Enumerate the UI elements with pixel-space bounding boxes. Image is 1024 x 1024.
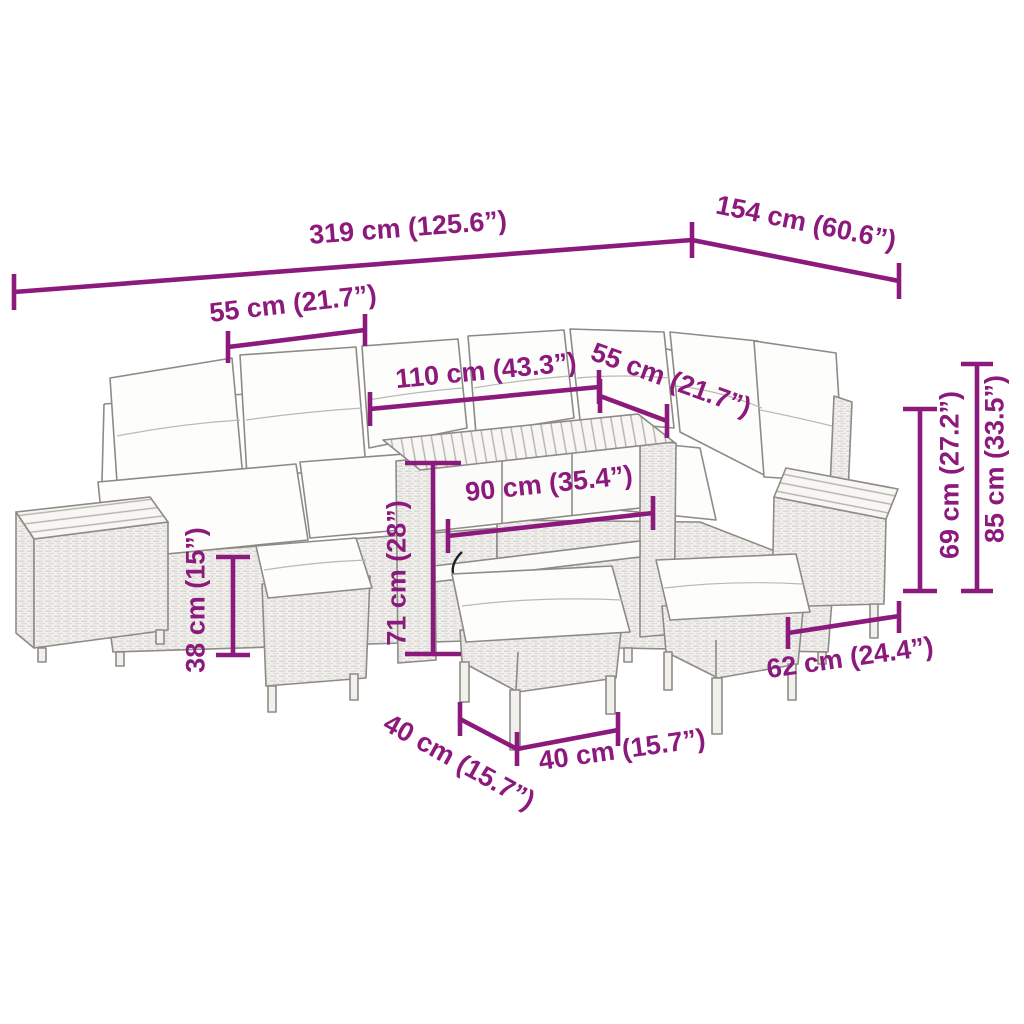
dimension-label-back-height: 69 cm (27.2”) <box>937 391 964 559</box>
dimension-line-table-height <box>405 463 461 654</box>
dimension-label-table-height: 71 cm (28”) <box>384 500 411 646</box>
dimension-label-stool-height: 38 cm (15”) <box>183 527 210 673</box>
dimension-line-back-height <box>903 409 937 591</box>
dimension-lines <box>0 0 1024 1024</box>
dimension-label-total-height: 85 cm (33.5”) <box>982 375 1009 543</box>
dimension-line-stool-height <box>216 557 250 655</box>
dimension-diagram: 319 cm (125.6”) 154 cm (60.6”) 55 cm (21… <box>0 0 1024 1024</box>
